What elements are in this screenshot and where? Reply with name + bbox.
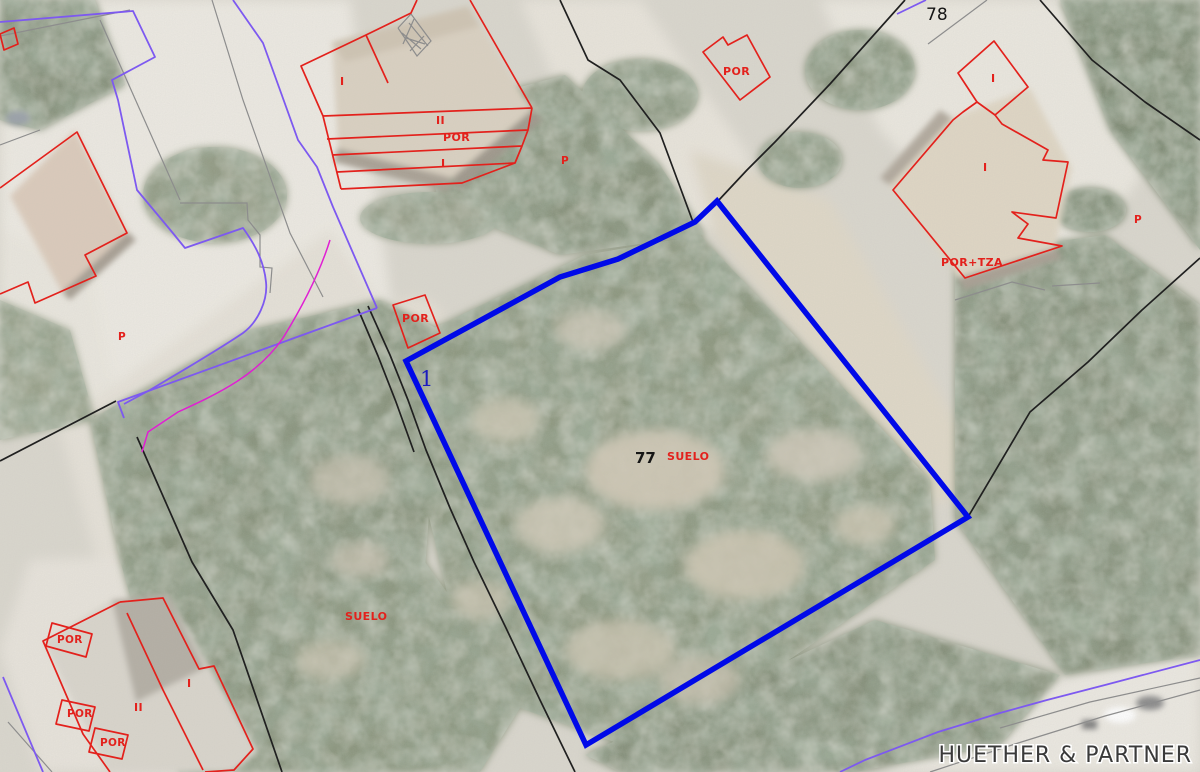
por-label: POR: [723, 65, 750, 78]
floor-count-label: I: [441, 157, 446, 170]
por-label: POR: [443, 131, 470, 144]
floor-count-label: I: [340, 75, 345, 88]
corner-point-marker: 1: [420, 367, 433, 391]
suelo-label: SUELO: [345, 610, 387, 623]
map-viewport: POR POR POR POR POR POR POR+TZA SUELO SU…: [0, 0, 1200, 772]
por-label: POR: [402, 312, 429, 325]
floor-count-label: I: [991, 72, 996, 85]
photo-grain: [0, 0, 1200, 772]
parcel-77-number: 77: [635, 449, 656, 467]
p-label: P: [118, 331, 126, 343]
floor-count-label: II: [134, 701, 143, 714]
por-tza-label: POR+TZA: [941, 256, 1003, 269]
p-label: P: [1134, 214, 1142, 226]
aerial-photo-layer: [0, 0, 1200, 772]
floor-count-label: I: [983, 161, 988, 174]
parcel-78-number: 78: [926, 5, 948, 25]
por-label: POR: [100, 737, 126, 749]
watermark: HUETHER & PARTNER: [938, 743, 1192, 768]
por-label: POR: [57, 634, 83, 646]
aerial-map: POR POR POR POR POR POR POR+TZA SUELO SU…: [0, 0, 1200, 772]
floor-count-label: II: [436, 114, 445, 127]
suelo-label: SUELO: [667, 450, 709, 463]
por-label: POR: [67, 708, 93, 720]
p-label: P: [561, 155, 569, 167]
floor-count-label: I: [187, 677, 192, 690]
